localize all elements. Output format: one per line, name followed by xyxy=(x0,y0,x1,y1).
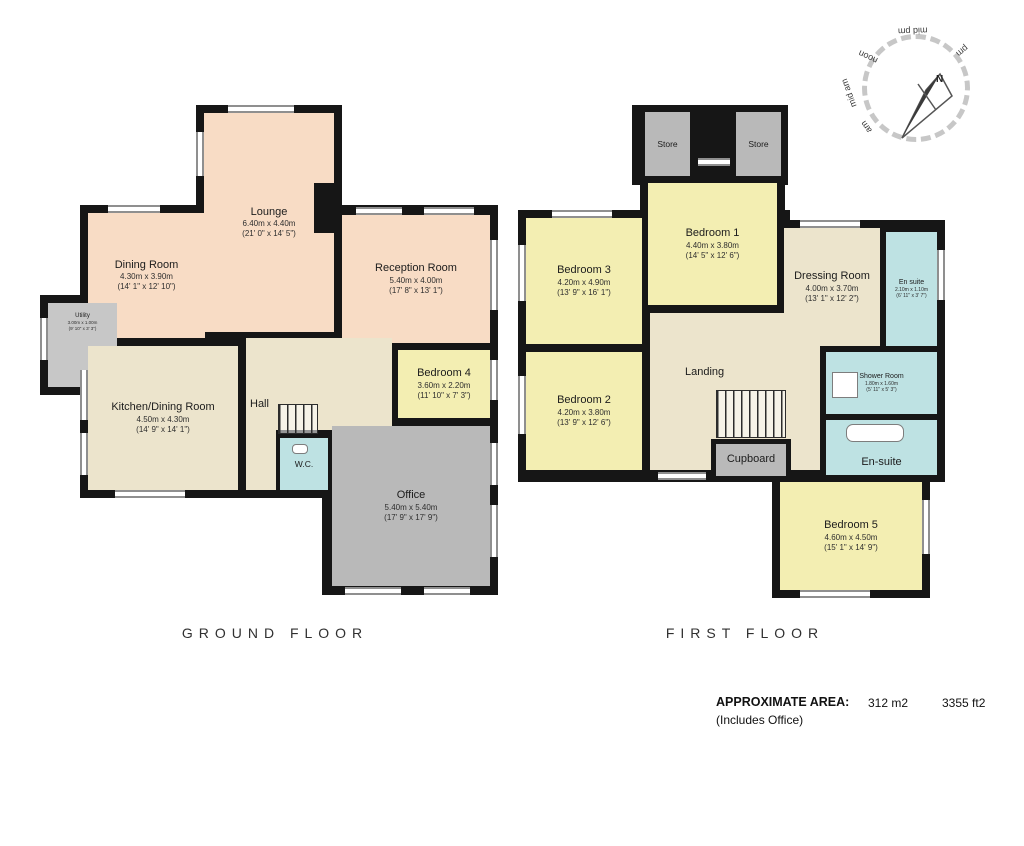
room-dims-metric: 6.40m x 4.40m xyxy=(243,219,296,229)
room-hall xyxy=(246,338,392,430)
room-dims-imperial: (14' 1" x 12' 10") xyxy=(117,282,175,292)
floorplan-canvas: Dining Room 4.30m x 3.90m (14' 1" x 12' … xyxy=(0,0,1024,846)
chimney-breast xyxy=(314,183,338,233)
room-cupboard: Cupboard xyxy=(716,444,786,476)
room-name: Bedroom 3 xyxy=(557,264,611,277)
room-dims-metric: 4.20m x 4.90m xyxy=(558,278,611,288)
room-store-left: Store xyxy=(645,112,690,176)
window xyxy=(80,370,88,420)
room-name: Kitchen/Dining Room xyxy=(111,401,214,414)
room-reception-room: Reception Room 5.40m x 4.00m (17' 8" x 1… xyxy=(342,215,490,343)
room-dims-imperial: (13' 9" x 12' 6") xyxy=(557,418,611,428)
room-name: Reception Room xyxy=(375,262,457,275)
room-dims-imperial: (11' 10" x 7' 3") xyxy=(417,391,470,401)
compass-north-label: N xyxy=(936,74,943,85)
room-bedroom-3: Bedroom 3 4.20m x 4.90m (13' 9" x 16' 1"… xyxy=(526,218,642,344)
window xyxy=(490,240,498,310)
ground-floor-title: GROUND FLOOR xyxy=(160,625,390,641)
room-name: Bedroom 5 xyxy=(824,519,878,532)
room-name: Utility xyxy=(75,313,90,320)
stairs xyxy=(716,390,786,438)
room-name: Store xyxy=(657,139,677,149)
sun-compass: noon mid pm pm mid am am N xyxy=(840,26,995,156)
room-bedroom-2: Bedroom 2 4.20m x 3.80m (13' 9" x 12' 6"… xyxy=(526,352,642,470)
room-bedroom-1: Bedroom 1 4.40m x 3.80m (14' 5" x 12' 6"… xyxy=(648,183,777,305)
room-bedroom-5: Bedroom 5 4.60m x 4.50m (15' 1" x 14' 9"… xyxy=(780,482,922,590)
room-name: Cupboard xyxy=(727,453,775,466)
room-office: Office 5.40m x 5.40m (17' 9" x 17' 9") xyxy=(332,426,490,586)
window xyxy=(424,587,470,595)
room-bedroom-4: Bedroom 4 3.60m x 2.20m (11' 10" x 7' 3"… xyxy=(398,350,490,418)
window xyxy=(937,250,945,300)
window xyxy=(108,205,160,213)
stairs xyxy=(278,404,318,434)
room-store-right: Store xyxy=(736,112,781,176)
room-dims-metric: 3.60m x 2.20m xyxy=(418,381,471,391)
window xyxy=(490,443,498,485)
window xyxy=(228,105,294,113)
room-dims-metric: 5.40m x 4.00m xyxy=(390,276,443,286)
window xyxy=(80,433,88,475)
window xyxy=(698,158,730,166)
window xyxy=(800,220,860,228)
first-floor-title: FIRST FLOOR xyxy=(650,625,840,641)
room-dims-metric: 4.40m x 3.80m xyxy=(686,241,739,251)
window xyxy=(658,472,706,480)
room-name: Bedroom 4 xyxy=(417,367,471,380)
approximate-area-label: APPROXIMATE AREA: xyxy=(716,695,849,709)
window xyxy=(518,245,526,301)
room-name: En-suite xyxy=(861,456,901,469)
room-name: Bedroom 2 xyxy=(557,394,611,407)
window xyxy=(922,500,930,554)
room-name: Dressing Room xyxy=(794,270,870,283)
shower-cubicle-icon xyxy=(832,372,858,398)
room-hall-corridor xyxy=(246,430,276,490)
window xyxy=(518,376,526,434)
room-dims-metric: 4.30m x 3.90m xyxy=(120,272,173,282)
includes-office-note: (Includes Office) xyxy=(716,713,803,727)
room-name: Store xyxy=(748,139,768,149)
window xyxy=(196,132,204,176)
window xyxy=(490,505,498,557)
compass-needle-icon xyxy=(840,26,995,156)
room-name: Lounge xyxy=(251,206,288,219)
room-dims-imperial: (9' 10" x 3' 3") xyxy=(69,326,97,332)
room-name: W.C. xyxy=(295,459,313,469)
window xyxy=(490,360,498,400)
window xyxy=(40,318,48,360)
room-dims-imperial: (5' 11" x 5' 3") xyxy=(866,387,896,393)
room-name: En suite xyxy=(899,279,924,287)
room-name: Bedroom 1 xyxy=(686,227,740,240)
room-dims-metric: 4.60m x 4.50m xyxy=(825,533,878,543)
room-name: Office xyxy=(397,489,426,502)
window xyxy=(115,490,185,498)
area-ft2-value: 3355 ft2 xyxy=(942,696,985,710)
window xyxy=(356,207,402,215)
room-dims-imperial: (13' 9" x 16' 1") xyxy=(557,288,611,298)
room-kitchen-dining-room: Kitchen/Dining Room 4.50m x 4.30m (14' 9… xyxy=(88,346,238,490)
window xyxy=(800,590,870,598)
room-name: Dining Room xyxy=(115,259,179,272)
bathtub-icon xyxy=(846,424,904,442)
room-dims-metric: 4.00m x 3.70m xyxy=(806,284,859,294)
room-dims-imperial: (13' 1" x 12' 2") xyxy=(805,294,859,304)
room-dims-metric: 5.40m x 5.40m xyxy=(385,503,438,513)
window xyxy=(552,210,612,218)
room-dims-metric: 4.20m x 3.80m xyxy=(558,408,611,418)
area-m2-value: 312 m2 xyxy=(868,696,908,710)
room-dims-imperial: (14' 9" x 14' 1") xyxy=(136,425,190,435)
window xyxy=(345,587,401,595)
room-name-hall: Hall xyxy=(250,398,269,411)
room-name: Shower Room xyxy=(859,373,903,381)
room-dims-imperial: (6' 11" x 3' 7") xyxy=(896,293,926,299)
room-dims-imperial: (14' 5" x 12' 6") xyxy=(686,251,740,261)
room-dims-imperial: (21' 0" x 14' 5") xyxy=(242,229,296,239)
room-dims-imperial: (17' 9" x 17' 9") xyxy=(384,513,438,523)
sink-icon xyxy=(292,444,308,454)
room-dims-imperial: (17' 8" x 13' 1") xyxy=(389,286,443,296)
room-dims-metric: 4.50m x 4.30m xyxy=(137,415,190,425)
window xyxy=(424,207,474,215)
room-name-landing: Landing xyxy=(685,366,724,379)
room-dims-imperial: (15' 1" x 14' 9") xyxy=(824,543,878,553)
room-en-suite-top: En suite 2.10m x 1.10m (6' 11" x 3' 7") xyxy=(886,232,937,346)
